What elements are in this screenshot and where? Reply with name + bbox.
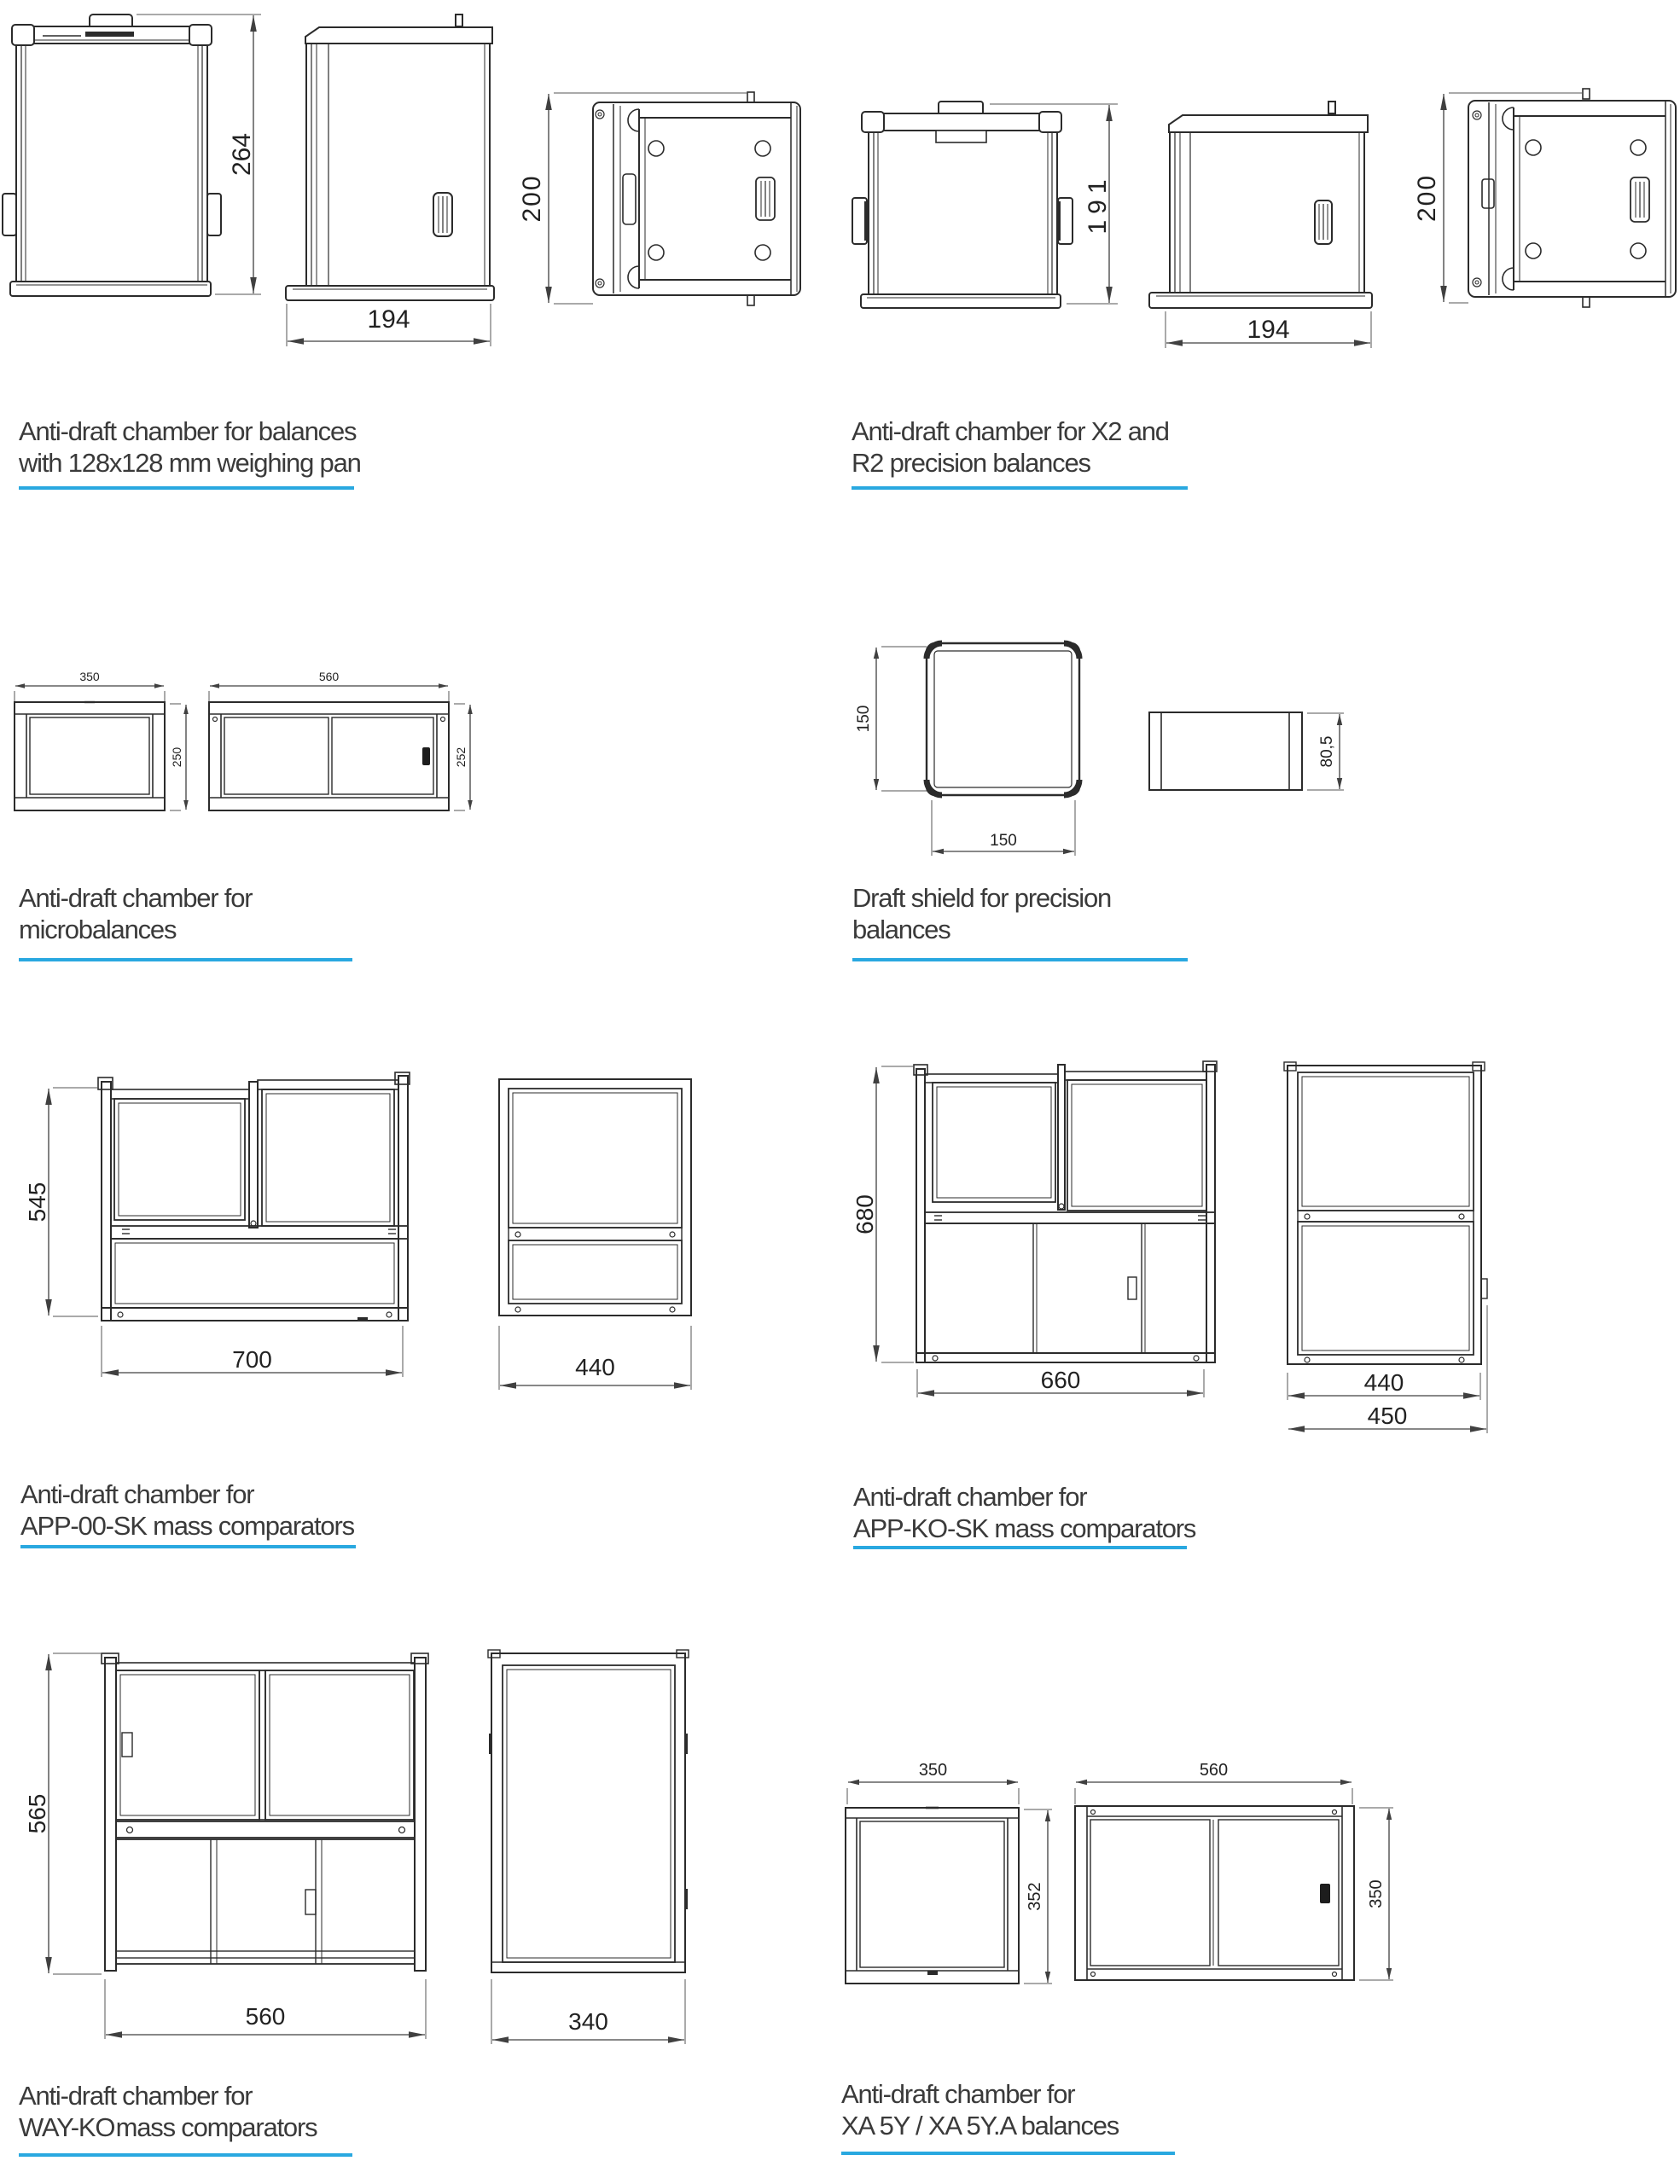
- svg-text:340: 340: [568, 2008, 608, 2035]
- svg-text:194: 194: [1247, 316, 1289, 344]
- svg-text:252: 252: [454, 747, 468, 768]
- svg-text:80,5: 80,5: [1318, 736, 1336, 768]
- svg-text:440: 440: [575, 1354, 615, 1380]
- svg-text:200: 200: [1413, 174, 1441, 222]
- svg-text:194: 194: [367, 305, 410, 334]
- svg-text:660: 660: [1041, 1367, 1081, 1393]
- svg-text:440: 440: [1364, 1369, 1404, 1396]
- svg-text:350: 350: [1367, 1879, 1386, 1908]
- svg-text:150: 150: [990, 832, 1017, 850]
- svg-text:450: 450: [1368, 1403, 1408, 1429]
- svg-text:150: 150: [855, 706, 873, 733]
- svg-text:700: 700: [232, 1346, 272, 1373]
- svg-text:350: 350: [919, 1761, 947, 1780]
- svg-text:352: 352: [1026, 1882, 1044, 1910]
- svg-text:250: 250: [170, 747, 183, 768]
- svg-text:560: 560: [1200, 1761, 1228, 1780]
- svg-text:264: 264: [228, 133, 256, 176]
- svg-text:560: 560: [246, 2003, 286, 2030]
- svg-text:545: 545: [24, 1182, 50, 1223]
- svg-text:200: 200: [518, 174, 546, 222]
- svg-text:191: 191: [1084, 173, 1112, 234]
- svg-text:560: 560: [319, 670, 340, 683]
- svg-text:565: 565: [24, 1794, 50, 1834]
- svg-text:350: 350: [79, 670, 100, 683]
- svg-text:680: 680: [852, 1194, 878, 1234]
